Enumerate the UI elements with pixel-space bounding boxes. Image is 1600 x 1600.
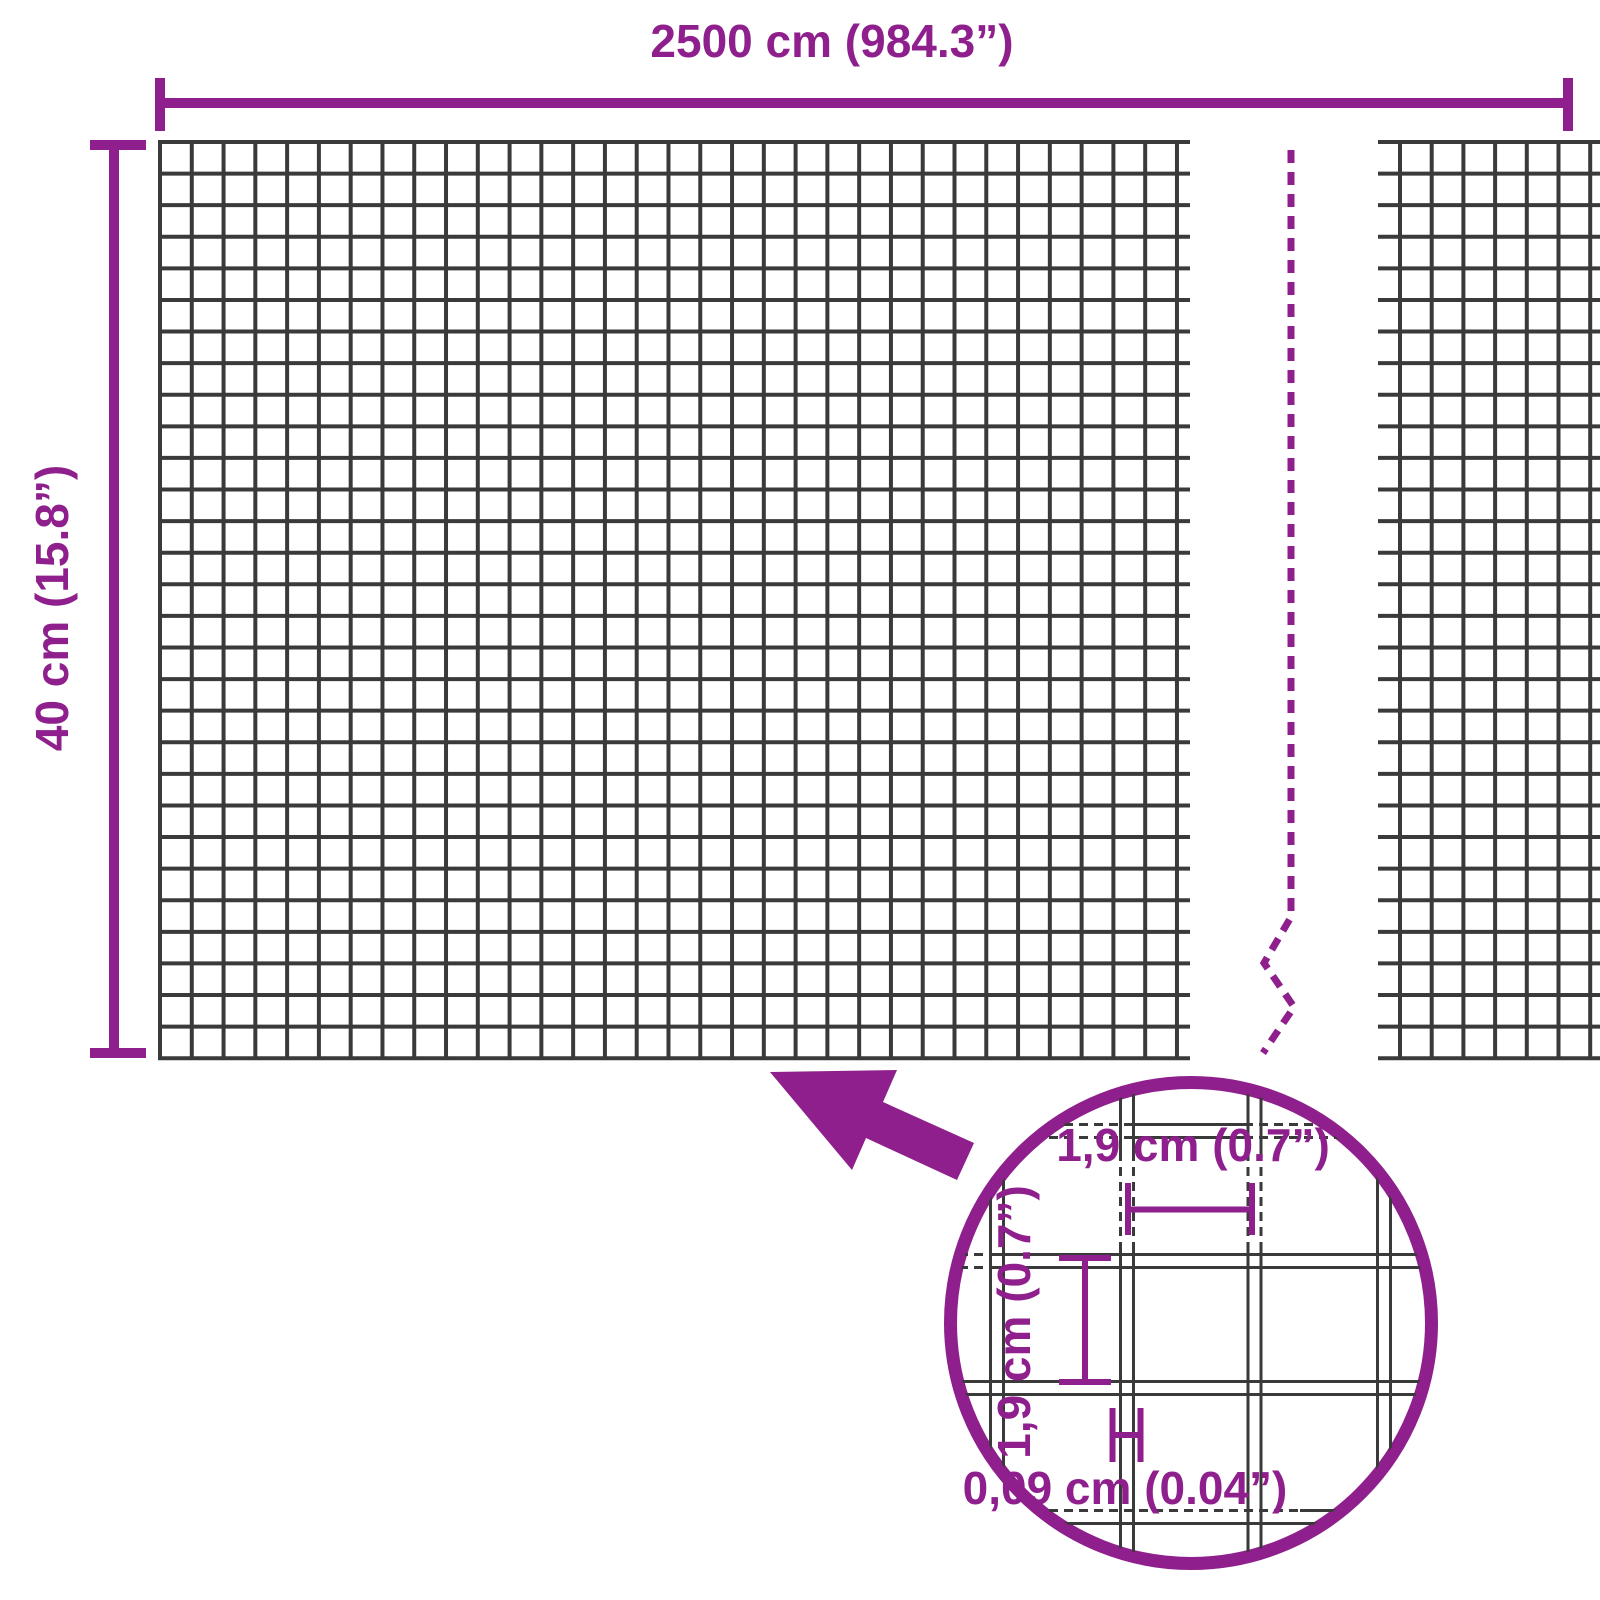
detail-circle: 1,9 cm (0.7”) 1,9 cm (0.7”) 0,09 cm (0.0… <box>944 1080 1438 1566</box>
width-dimension-label: 2500 cm (984.3”) <box>650 15 1013 67</box>
zoom-arrow-icon <box>770 1070 974 1180</box>
cell-width-label: 1,9 cm (0.7”) <box>1056 1119 1330 1171</box>
diagram-svg: 2500 cm (984.3”) 40 cm (15.8”) 1,9 cm (0… <box>0 0 1600 1600</box>
height-dimension-label: 40 cm (15.8”) <box>26 465 78 751</box>
cell-height-label: 1,9 cm (0.7”) <box>988 1185 1040 1459</box>
height-dimension: 40 cm (15.8”) <box>26 145 146 1053</box>
mesh-panel-right <box>1378 140 1600 1060</box>
mesh-panel-left <box>158 140 1190 1060</box>
wire-thickness-label: 0,09 cm (0.04”) <box>963 1462 1288 1514</box>
width-dimension: 2500 cm (984.3”) <box>160 15 1568 131</box>
break-line-icon <box>1263 150 1294 1053</box>
product-dimension-diagram: 2500 cm (984.3”) 40 cm (15.8”) 1,9 cm (0… <box>0 0 1600 1600</box>
